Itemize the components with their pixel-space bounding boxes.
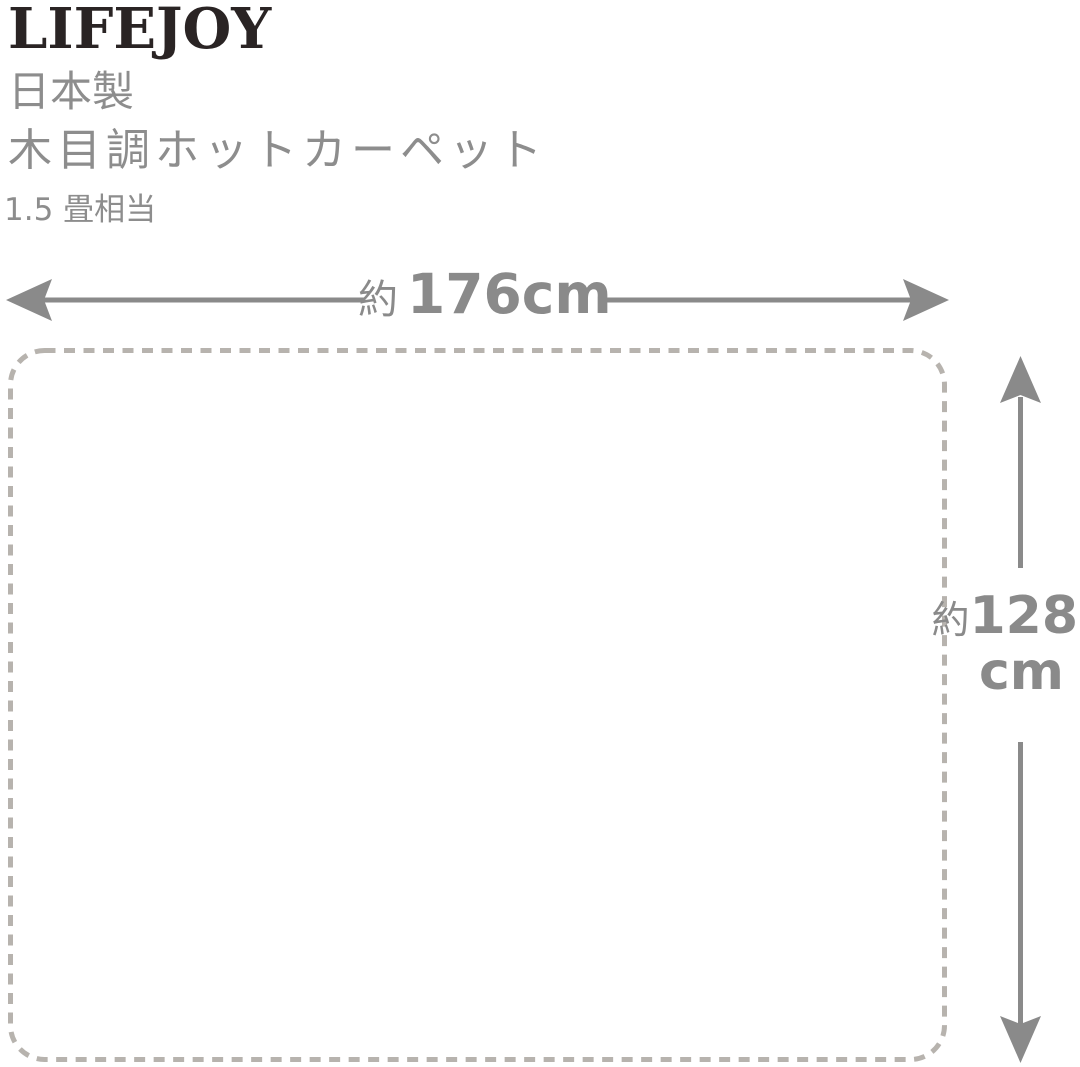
width-approx-text: 約 — [358, 277, 398, 323]
product-dimension-diagram: LIFEJOY 日本製 木目調ホットカーペット 1.5 畳相当 約176cm 約… — [0, 0, 1080, 1067]
width-dimension-label: 約176cm — [358, 262, 598, 326]
height-approx-text: 約 — [931, 598, 969, 642]
height-label-line1: 約128 — [920, 588, 1078, 644]
width-value-text: 176cm — [407, 262, 612, 326]
dimension-diagram-graphics — [0, 0, 1080, 1067]
height-label-line2: cm — [920, 644, 1078, 700]
height-unit-text: cm — [979, 642, 1064, 702]
carpet-outline — [11, 351, 945, 1060]
height-dimension-label: 約128 cm — [920, 588, 1078, 700]
height-value-text: 128 — [969, 586, 1078, 646]
height-arrowhead-up-icon — [1000, 356, 1041, 403]
